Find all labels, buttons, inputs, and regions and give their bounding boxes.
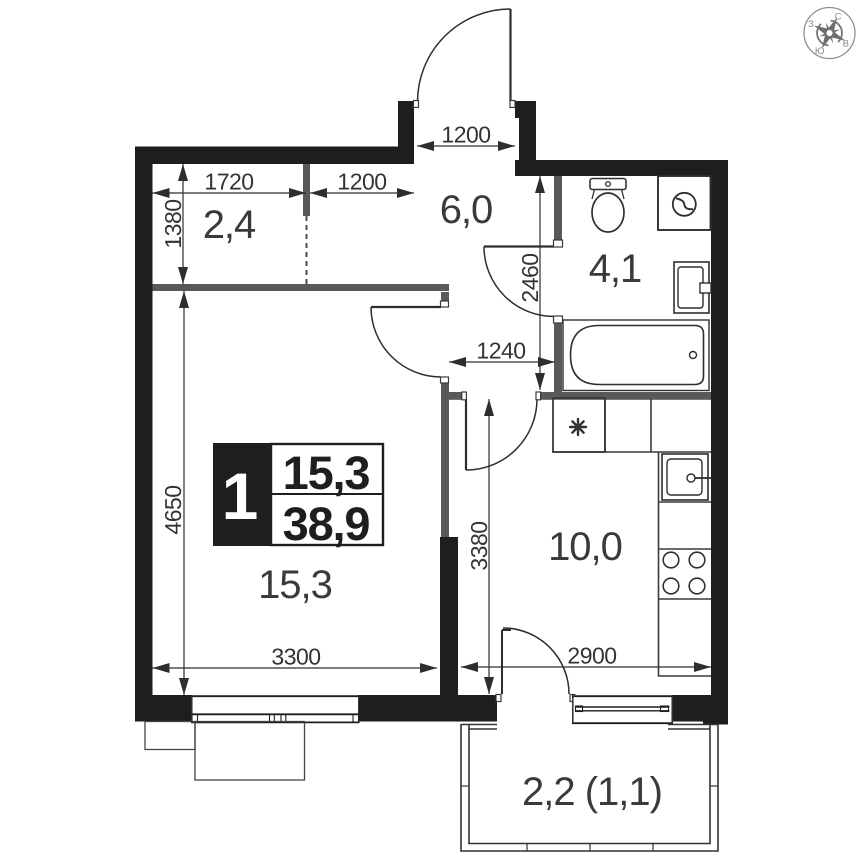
svg-text:15,3: 15,3 [283, 446, 370, 499]
svg-text:2900: 2900 [567, 643, 616, 669]
svg-text:10,0: 10,0 [548, 525, 622, 569]
svg-text:1200: 1200 [337, 169, 386, 195]
svg-text:Ю: Ю [815, 46, 825, 57]
svg-text:4,1: 4,1 [589, 247, 642, 291]
svg-text:4650: 4650 [160, 485, 186, 534]
svg-text:3380: 3380 [466, 521, 492, 570]
svg-text:1: 1 [222, 459, 259, 533]
svg-text:2460: 2460 [517, 253, 543, 302]
svg-text:2,2 (1,1): 2,2 (1,1) [522, 770, 662, 814]
svg-text:6,0: 6,0 [440, 188, 493, 232]
svg-text:2,4: 2,4 [203, 203, 256, 247]
svg-text:1380: 1380 [160, 199, 186, 248]
svg-text:1200: 1200 [441, 122, 490, 148]
svg-text:С: С [835, 12, 842, 23]
svg-text:В: В [843, 39, 849, 50]
svg-text:38,9: 38,9 [283, 497, 370, 550]
svg-text:1720: 1720 [204, 169, 253, 195]
svg-text:1240: 1240 [476, 338, 525, 364]
svg-text:15,3: 15,3 [258, 563, 332, 607]
svg-text:З: З [808, 19, 814, 30]
svg-text:3300: 3300 [271, 644, 320, 670]
